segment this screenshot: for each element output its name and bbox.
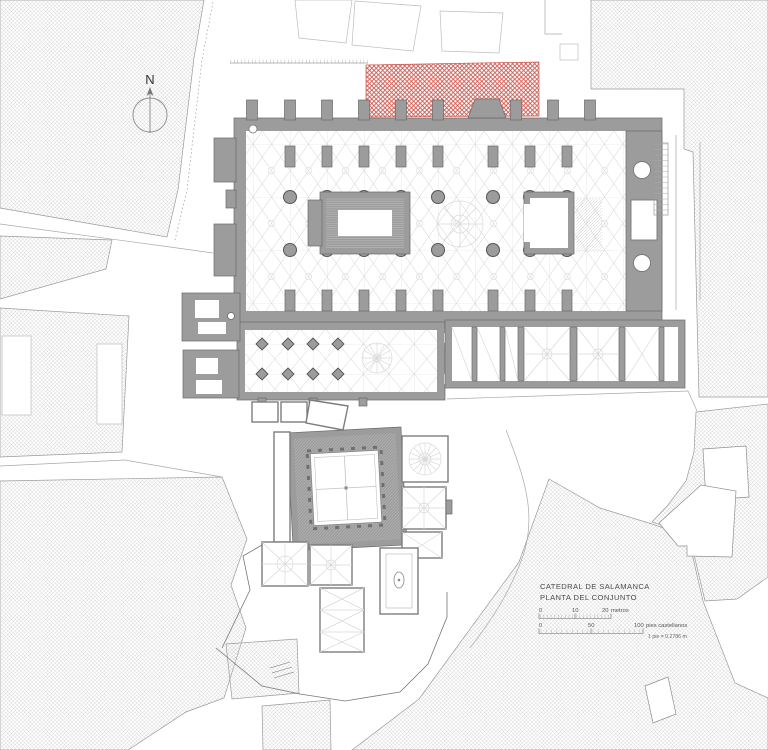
scale-conversion-note: 1 pie = 0.2786 m bbox=[648, 634, 687, 640]
building-footprint bbox=[440, 11, 503, 53]
east-cloister-chapels bbox=[402, 436, 452, 558]
scale-tick-label: 100 bbox=[634, 623, 644, 629]
long-chapel bbox=[320, 588, 364, 652]
plan-title-line2: PLANTA DEL CONJUNTO bbox=[540, 593, 637, 602]
sacristy-wing bbox=[445, 320, 685, 388]
scale-tick-label: 0 bbox=[539, 623, 542, 629]
courtyard bbox=[97, 344, 122, 424]
annex-room bbox=[281, 402, 307, 422]
capilla-mayor bbox=[524, 192, 602, 254]
city-block bbox=[0, 236, 112, 299]
scale-tick-label: 50 bbox=[588, 623, 594, 629]
city-block bbox=[262, 700, 331, 750]
torre-del-gallo-dome bbox=[362, 343, 392, 373]
city-block bbox=[0, 0, 204, 237]
crossing-dome bbox=[437, 201, 483, 247]
salamanca-cathedral-site-plan: N CATEDRAL DE SALAMANCA PLANTA DEL CONJU… bbox=[0, 0, 768, 750]
trascoro bbox=[308, 200, 322, 246]
new-cathedral bbox=[214, 99, 668, 331]
scale-tick-label: 10 bbox=[572, 608, 578, 614]
west-towers bbox=[182, 293, 240, 398]
terrace-edge bbox=[447, 391, 697, 411]
stair-turret bbox=[249, 125, 257, 133]
boundary-fence bbox=[230, 60, 368, 64]
site-plan-canvas: N CATEDRAL DE SALAMANCA PLANTA DEL CONJU… bbox=[0, 0, 768, 750]
faint-buildings bbox=[295, 0, 578, 60]
city-block bbox=[226, 639, 299, 699]
annex-chapel bbox=[306, 400, 348, 430]
west-front bbox=[214, 138, 236, 276]
annex-room bbox=[252, 402, 278, 422]
building-footprint bbox=[352, 1, 421, 51]
vault-ribs bbox=[245, 330, 437, 392]
chapel-apse bbox=[446, 500, 452, 514]
retrochoir-texture bbox=[576, 198, 602, 252]
street-edge bbox=[0, 460, 222, 477]
north-portal bbox=[468, 99, 506, 118]
building-footprint bbox=[560, 44, 578, 60]
cloister bbox=[287, 427, 407, 551]
building-footprint bbox=[295, 0, 352, 43]
city-block bbox=[0, 477, 247, 750]
exterior-stairs bbox=[654, 143, 668, 215]
plan-title-line1: CATEDRAL DE SALAMANCA bbox=[540, 582, 650, 591]
scale-unit-label: pies castellanos bbox=[646, 623, 687, 629]
scale-tick-label: 0 bbox=[539, 608, 542, 614]
north-label: N bbox=[145, 72, 154, 87]
cloister-west-range bbox=[274, 432, 290, 542]
courtyard bbox=[2, 336, 31, 415]
garth-fountain bbox=[344, 486, 347, 489]
scale-tick-label: 20 bbox=[602, 608, 608, 614]
choir bbox=[308, 192, 410, 254]
building-edge bbox=[545, 0, 562, 34]
scale-unit-label: metros bbox=[611, 608, 629, 614]
